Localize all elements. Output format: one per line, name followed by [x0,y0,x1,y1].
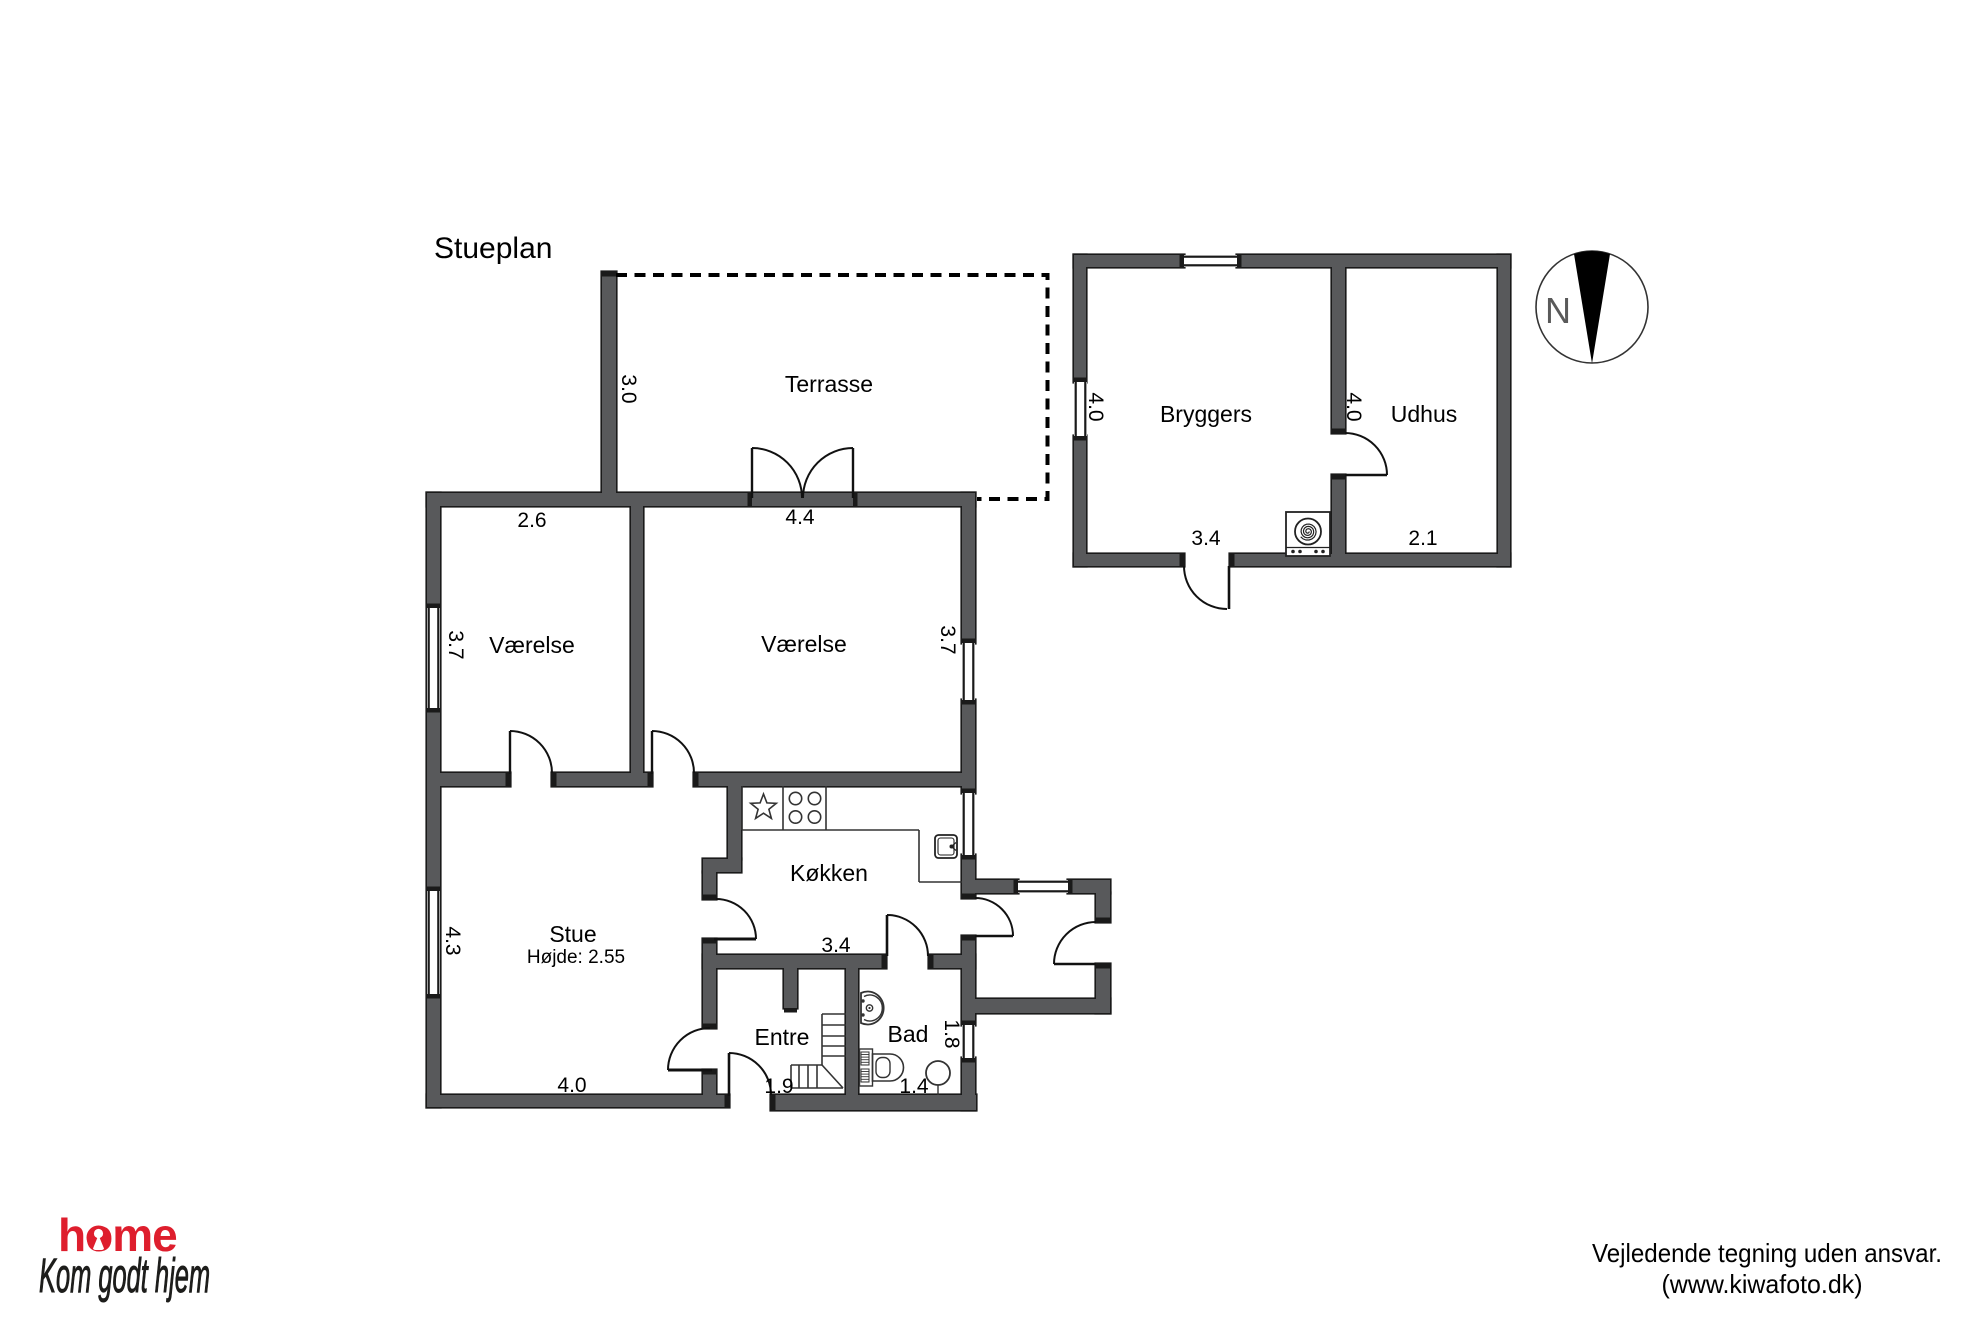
svg-text:Køkken: Køkken [790,860,868,886]
svg-text:3.7: 3.7 [936,625,959,654]
svg-text:Entre: Entre [755,1024,810,1050]
svg-text:3.0: 3.0 [617,374,640,403]
svg-text:N: N [1545,290,1571,331]
svg-text:1.8: 1.8 [940,1019,963,1048]
svg-text:2.1: 2.1 [1408,527,1437,550]
svg-text:3.4: 3.4 [1191,527,1221,550]
svg-text:Stue: Stue [549,921,596,947]
svg-text:Værelse: Værelse [489,632,575,658]
svg-text:2.6: 2.6 [517,509,546,532]
svg-text:4.0: 4.0 [1084,392,1107,421]
svg-text:Værelse: Værelse [761,631,847,657]
svg-text:4.0: 4.0 [1342,392,1365,421]
svg-text:3.7: 3.7 [444,630,467,659]
svg-text:Kom godt hjem: Kom godt hjem [39,1250,210,1304]
svg-text:4.4: 4.4 [785,506,815,529]
svg-text:1.9: 1.9 [764,1075,793,1098]
svg-text:Terrasse: Terrasse [785,371,873,397]
svg-text:3.4: 3.4 [821,934,851,957]
svg-text:Bad: Bad [888,1021,929,1047]
svg-text:1.4: 1.4 [899,1075,929,1098]
svg-text:Vejledende tegning uden ansvar: Vejledende tegning uden ansvar. [1592,1238,1942,1268]
svg-text:4.3: 4.3 [441,926,464,955]
svg-text:(www.kiwafoto.dk): (www.kiwafoto.dk) [1662,1269,1863,1299]
svg-text:Stueplan: Stueplan [434,232,552,265]
svg-text:Højde: 2.55: Højde: 2.55 [527,947,625,968]
svg-text:Udhus: Udhus [1391,401,1457,427]
svg-text:Bryggers: Bryggers [1160,401,1252,427]
svg-text:4.0: 4.0 [557,1074,586,1097]
